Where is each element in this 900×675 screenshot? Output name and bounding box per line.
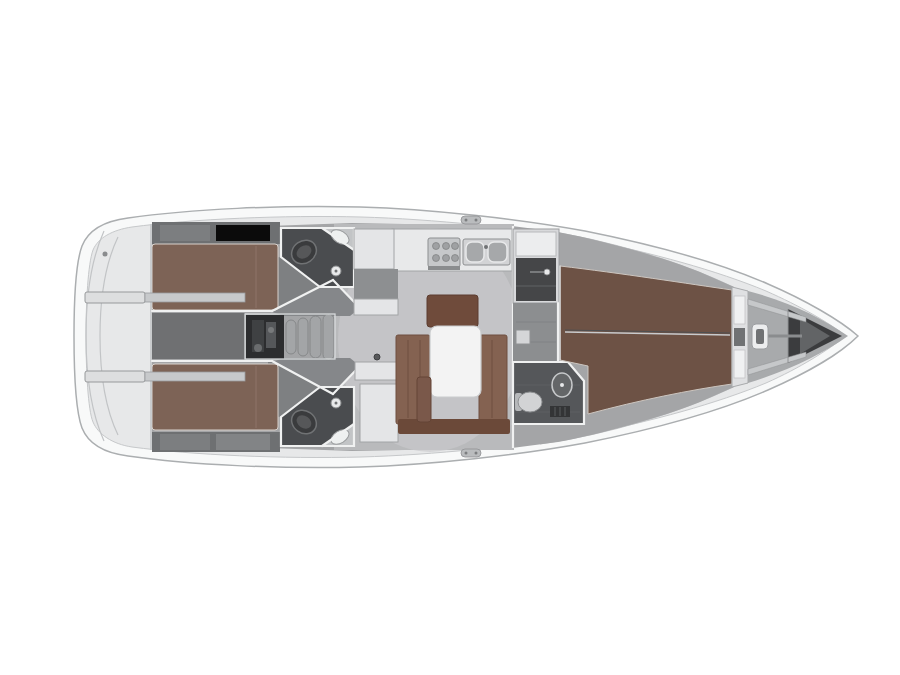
shower-head-dot <box>335 270 338 273</box>
swim-step-extension <box>145 372 245 381</box>
settee-bench-right <box>479 335 507 424</box>
stern-fitting <box>103 252 108 257</box>
bulkhead-panel <box>734 350 745 378</box>
cleat <box>461 216 481 224</box>
engine-compartment <box>246 315 284 359</box>
swim-step-extension <box>145 293 245 302</box>
bulkhead-panel <box>734 296 745 324</box>
stove-burner <box>443 255 450 262</box>
step-tread <box>323 314 334 360</box>
wardrobe-interior <box>516 258 556 301</box>
cleat-bolt <box>475 452 478 455</box>
shower-drain <box>560 383 564 387</box>
salon-table <box>430 326 481 397</box>
cleat-bolt <box>465 452 468 455</box>
galley-end-cabinet <box>354 299 398 315</box>
companionway-steps <box>286 314 334 360</box>
shower-head-dot <box>335 402 338 405</box>
toilet <box>518 392 542 412</box>
mast-step <box>374 354 380 360</box>
engine-pulley <box>254 344 262 352</box>
windlass-gypsy <box>756 329 764 344</box>
wardrobe <box>513 229 559 303</box>
engine-block <box>266 322 276 348</box>
yacht-floor-plan-canvas <box>0 0 900 675</box>
stove-burner <box>443 243 450 250</box>
stove-rail <box>428 266 460 270</box>
locker-panel <box>216 225 270 241</box>
door-handle <box>544 269 550 275</box>
aft-corridor-floor <box>152 313 245 359</box>
swim-step <box>85 292 145 303</box>
locker-panel <box>216 434 270 450</box>
sink-bowl <box>488 242 507 262</box>
yacht-floor-plan <box>0 0 900 675</box>
cleat-bolt <box>465 219 468 222</box>
settee-backrest <box>427 295 478 327</box>
cleat-bolt <box>475 219 478 222</box>
stove-burner <box>452 243 459 250</box>
settee-bench-front <box>398 419 510 434</box>
stove-burner <box>452 255 459 262</box>
engine-pulley <box>268 327 274 333</box>
locker-panel <box>160 434 210 450</box>
wardrobe-door <box>516 232 556 256</box>
sink-bowl <box>466 242 484 262</box>
cleat <box>461 449 481 457</box>
head-entry-gap <box>354 269 398 299</box>
step-tread <box>298 318 308 356</box>
faucet <box>484 245 488 249</box>
fwd-head <box>513 362 584 424</box>
salon-side-bench <box>355 362 399 380</box>
bulkhead-opening <box>734 328 745 346</box>
locker-panel <box>160 225 210 241</box>
switch-panel <box>516 330 530 344</box>
step-tread <box>286 320 296 354</box>
swim-step <box>85 371 145 382</box>
galley-cabinet <box>354 229 394 269</box>
settee-stool <box>417 377 431 422</box>
fwd-corridor <box>513 303 559 361</box>
step-tread <box>310 316 321 358</box>
stove-burner <box>433 243 440 250</box>
stove-burner <box>433 255 440 262</box>
salon-side-cabinet <box>360 384 398 442</box>
